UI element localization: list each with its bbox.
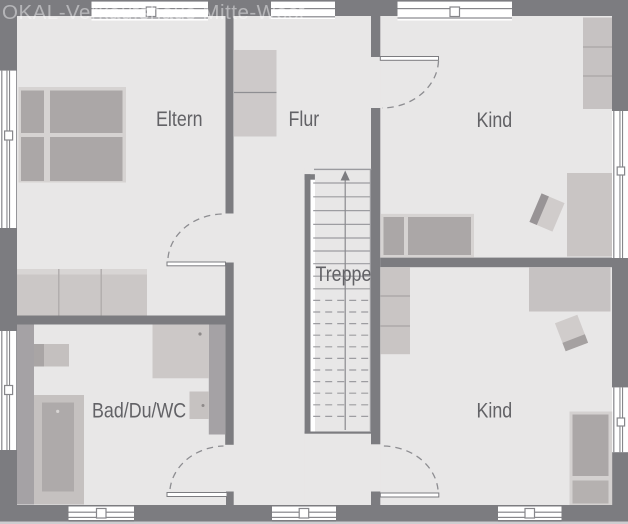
svg-text:Eltern: Eltern (156, 107, 203, 131)
svg-text:OKAL-Verkaufshaus Mitte-West: OKAL-Verkaufshaus Mitte-West (2, 1, 305, 24)
svg-text:Bad/Du/WC: Bad/Du/WC (92, 399, 186, 423)
svg-text:Kind: Kind (477, 109, 513, 133)
svg-text:Kind: Kind (477, 399, 513, 423)
svg-text:Flur: Flur (289, 108, 320, 132)
svg-text:Treppe: Treppe (316, 263, 372, 287)
